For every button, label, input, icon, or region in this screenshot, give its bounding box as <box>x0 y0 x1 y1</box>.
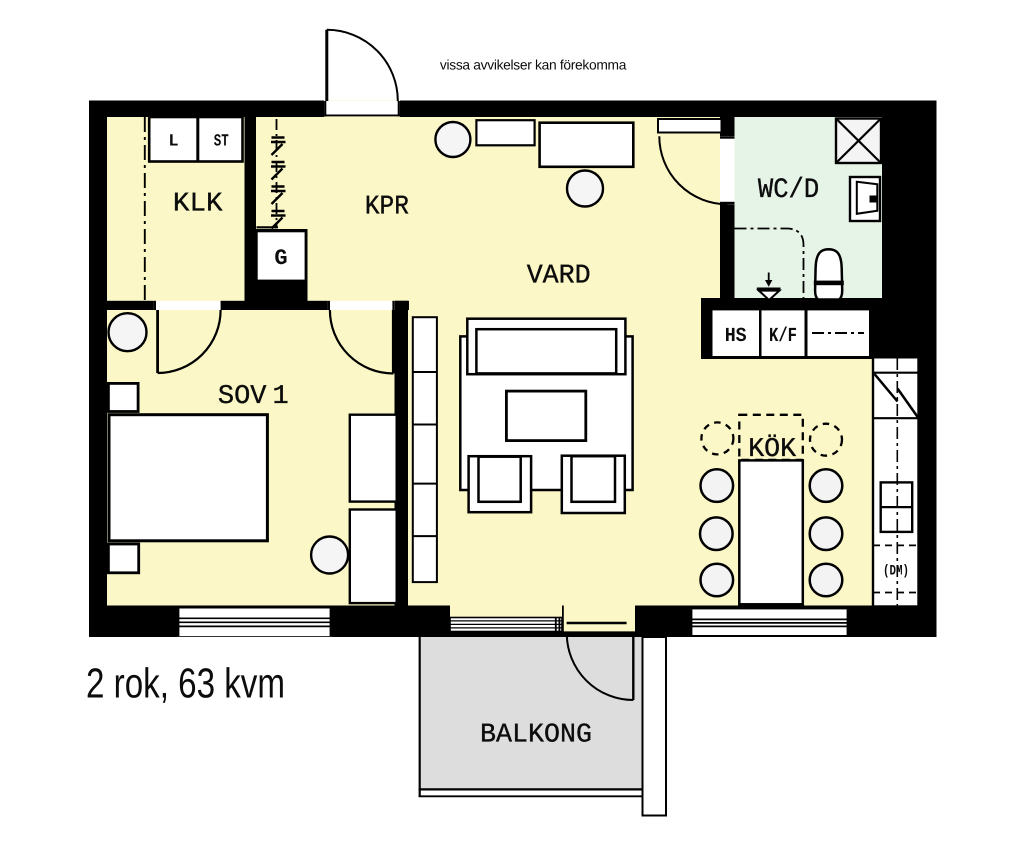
svg-text:ST: ST <box>214 133 229 152</box>
svg-text:G: G <box>274 246 287 271</box>
svg-text:WC/D: WC/D <box>758 175 819 206</box>
svg-text:BALKONG: BALKONG <box>480 721 592 751</box>
svg-text:vissa avvikelser kan förekomma: vissa avvikelser kan förekomma <box>440 58 627 73</box>
svg-text:L: L <box>168 133 178 152</box>
svg-text:2 rok, 63 kvm: 2 rok, 63 kvm <box>86 660 285 707</box>
svg-text:(DM): (DM) <box>883 564 909 580</box>
svg-text:SOV: SOV <box>218 382 267 412</box>
svg-text:KPR: KPR <box>365 193 409 223</box>
svg-text:HS: HS <box>725 325 747 348</box>
svg-text:VARD: VARD <box>527 262 591 292</box>
svg-text:KLK: KLK <box>173 190 224 220</box>
svg-text:K/F: K/F <box>769 325 797 348</box>
svg-text:KÖK: KÖK <box>748 434 797 465</box>
svg-text:1: 1 <box>273 382 289 412</box>
